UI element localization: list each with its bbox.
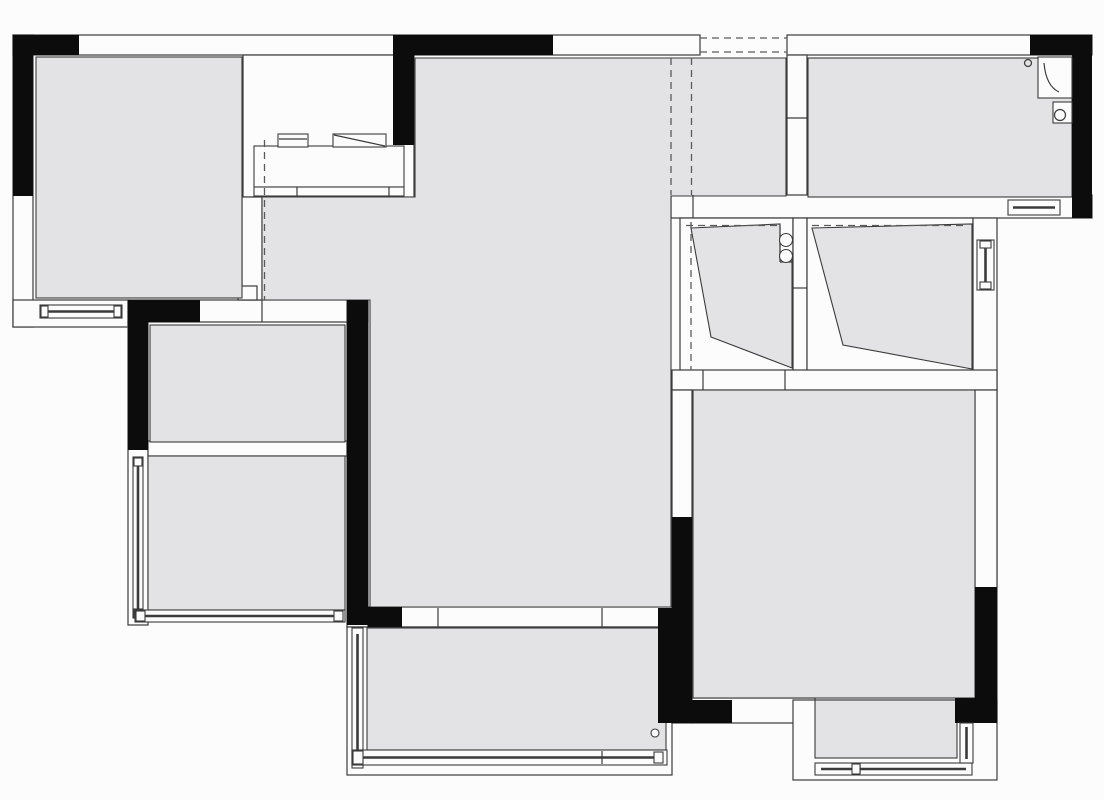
window-balcony-right-side [960, 723, 973, 763]
kitchen-cooktop-icon [278, 134, 308, 147]
wardrobe-mid-wall [793, 218, 807, 378]
wall-black-left-v [13, 35, 33, 196]
floor-plan-svg [0, 0, 1104, 800]
wall-bedroom-right [242, 197, 262, 300]
wall-black-bath-top-h [1030, 35, 1092, 55]
wall-black-balcony-left-h [368, 607, 402, 627]
room-top-left [36, 57, 242, 298]
divider-left-rooms [148, 441, 347, 456]
wall-black-leftroom-left-v [128, 322, 148, 450]
window-left-room-bottom [135, 610, 345, 622]
room-left-middle-lower [148, 456, 345, 610]
kitchen-counter-shelf [254, 187, 404, 196]
wall-black-leftroom-top-h [128, 300, 200, 322]
wall-black-kitchen-top-h [393, 35, 553, 55]
wall-black-kitchen-v [393, 55, 414, 145]
window-balcony-side [352, 628, 363, 768]
window-balcony-bottom [352, 750, 667, 765]
window-balcony-right-bottom [815, 763, 972, 775]
wall-black-master-bottomleft-h [692, 700, 732, 723]
window-bedroom-bottom [40, 305, 122, 318]
toilet-icon [1053, 102, 1072, 123]
room-left-middle-upper [150, 325, 345, 442]
wall-black-master-bottomright-h [955, 698, 997, 723]
kitchen-counter [254, 146, 404, 187]
pipe-duct-circles-icon [780, 234, 793, 247]
balcony-bottom-center [367, 628, 666, 750]
window-right-wall [977, 240, 994, 290]
floor-plan-canvas [0, 0, 1104, 800]
floor-drain-icon-balcony [651, 729, 659, 737]
wall-top-left-band [13, 35, 700, 55]
window-bath-bottom [1008, 200, 1060, 215]
pipe-duct-circles-icon [780, 250, 793, 263]
wall-band-master-top [672, 370, 997, 390]
wall-black-master-right-v [975, 587, 997, 698]
wall-black-leftroom-right-v [347, 300, 368, 625]
wall-black-master-left-v [672, 517, 692, 700]
room-bottom-right [693, 390, 975, 698]
room-floors [36, 57, 1072, 758]
wall-band-balcony-top [368, 607, 672, 627]
balcony-bottom-right [815, 700, 957, 758]
room-top-right [808, 58, 1072, 197]
wall-entry-right [787, 55, 807, 197]
window-left-room-side [133, 457, 143, 618]
kitchen-sink-drainer-icon [333, 134, 386, 147]
wall-black-bath-right-v [1072, 55, 1092, 218]
